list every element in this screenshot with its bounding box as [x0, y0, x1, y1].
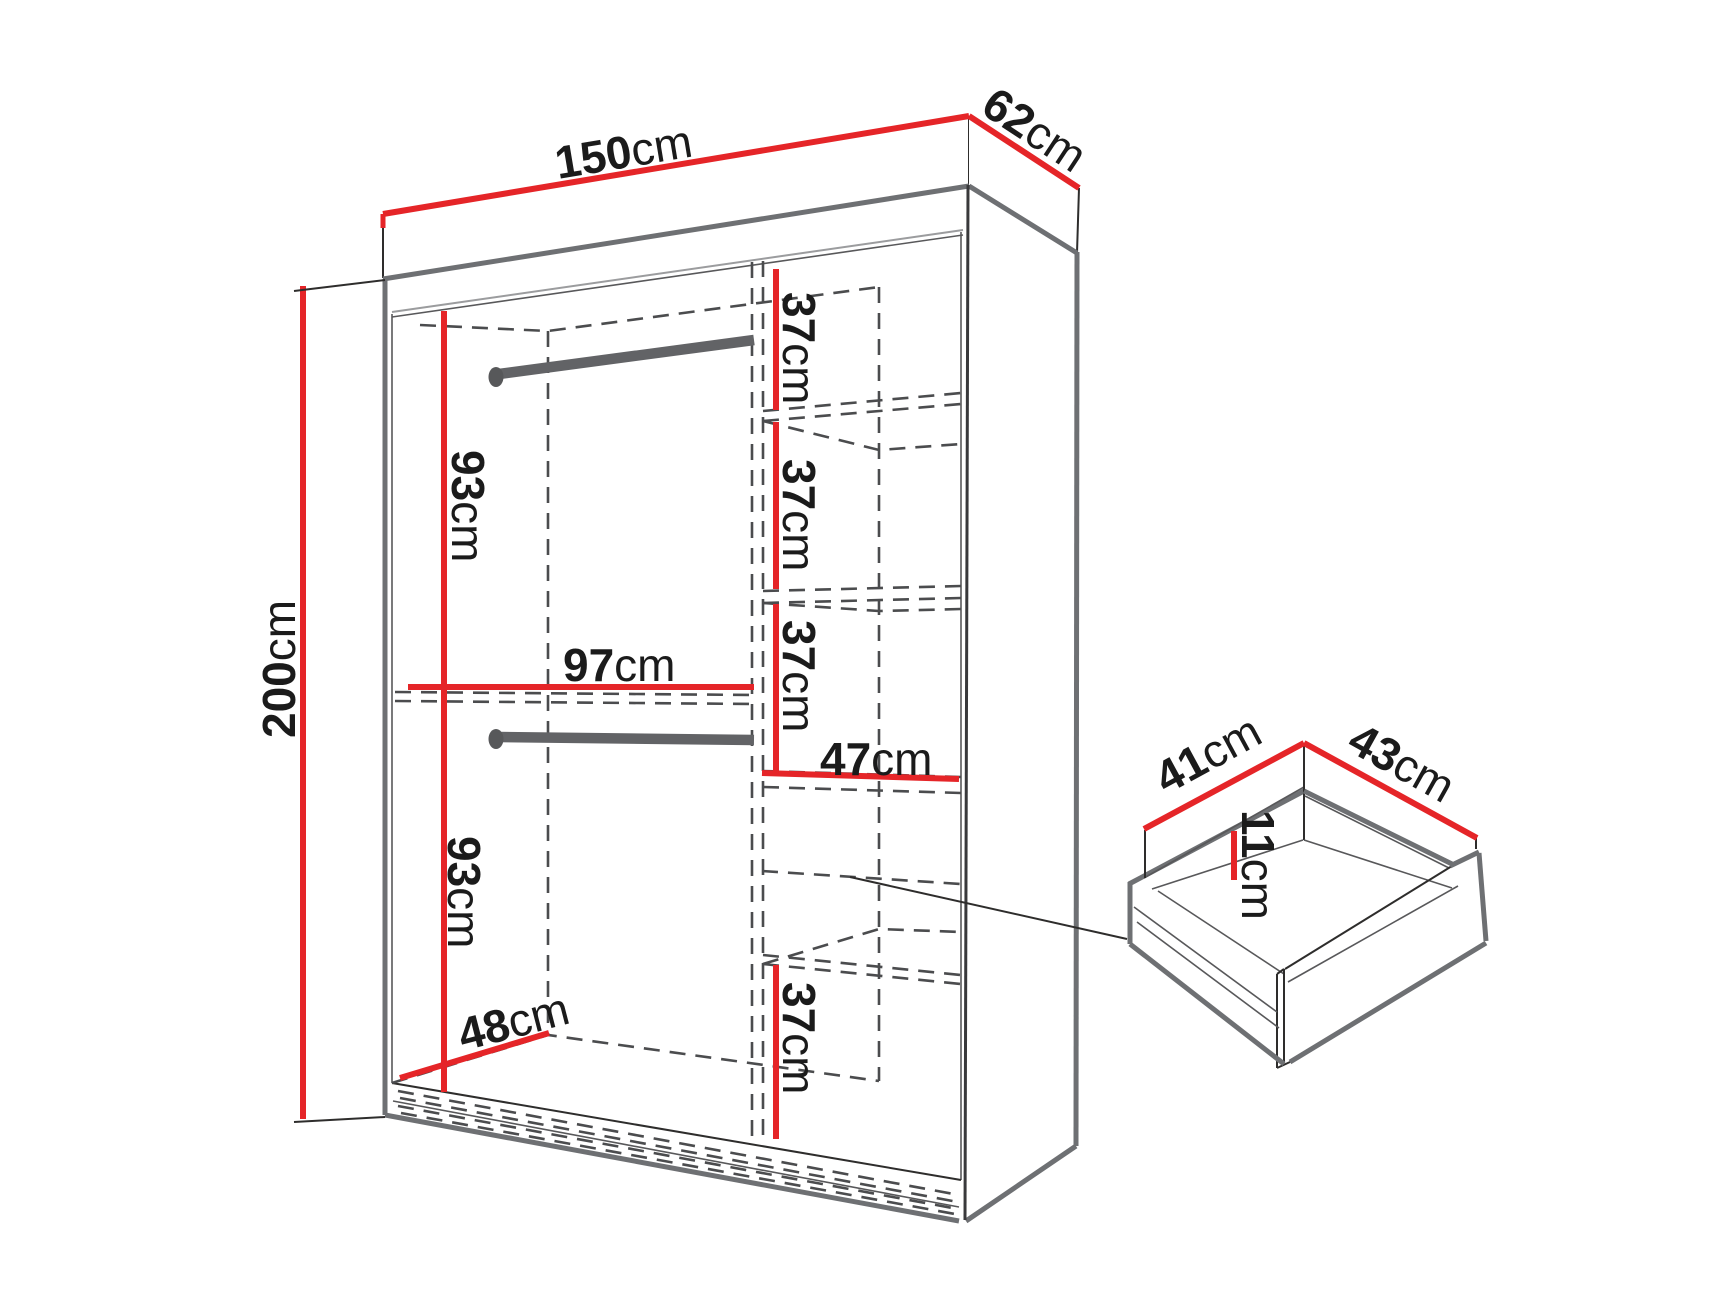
svg-text:47cm: 47cm: [820, 733, 933, 785]
svg-text:37cm: 37cm: [773, 982, 825, 1095]
svg-text:11cm: 11cm: [1232, 810, 1284, 920]
svg-text:200cm: 200cm: [253, 600, 305, 738]
svg-text:93cm: 93cm: [442, 450, 494, 563]
svg-text:37cm: 37cm: [773, 459, 825, 572]
svg-text:97cm: 97cm: [563, 639, 676, 691]
svg-text:37cm: 37cm: [773, 620, 825, 733]
svg-text:93cm: 93cm: [438, 836, 490, 949]
svg-text:37cm: 37cm: [773, 292, 825, 405]
